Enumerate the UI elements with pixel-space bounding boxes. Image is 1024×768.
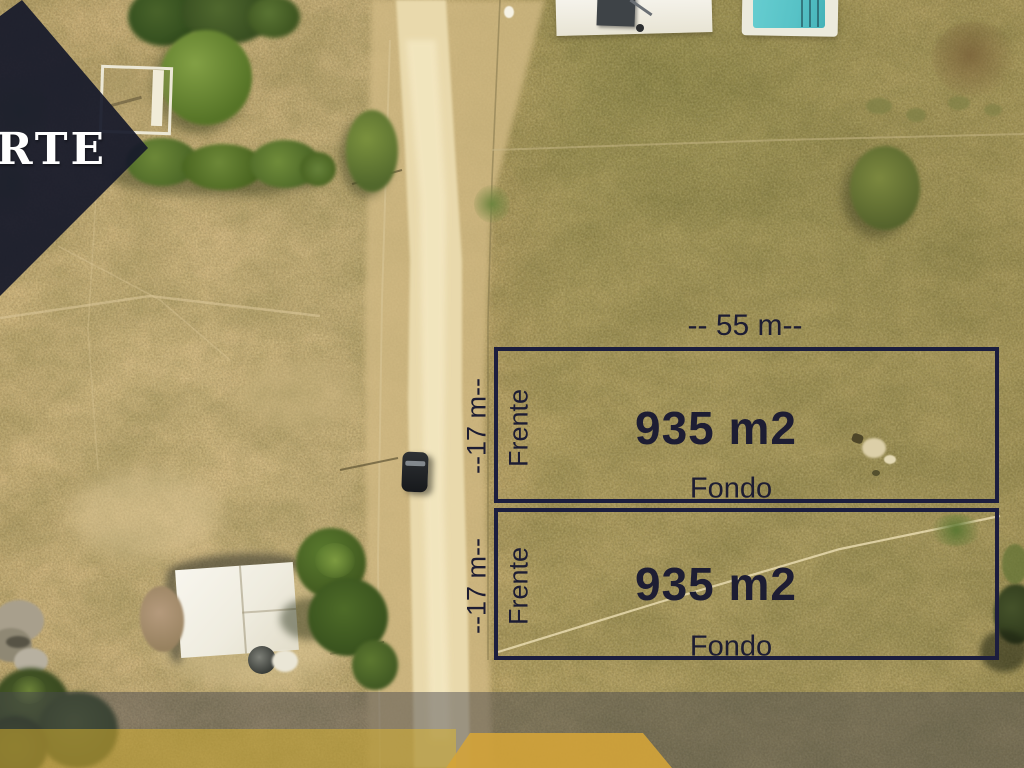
lot-1-depth-label: --17 m--: [462, 378, 493, 474]
grass-tuft: [1002, 544, 1024, 584]
lot-1-area-label: 935 m2: [635, 401, 797, 455]
lot-1-front-label: Frente: [504, 389, 535, 467]
banner-gold-chevron: [440, 731, 680, 768]
banner-yellow-band: [0, 729, 456, 768]
roof-panel: [596, 0, 635, 27]
roof-vent: [636, 24, 644, 32]
lot-2-area-label: 935 m2: [635, 557, 797, 611]
worn-patch: [240, 360, 360, 430]
tree: [850, 146, 920, 230]
shrub: [948, 96, 970, 110]
lot-1-back-label: Fondo: [690, 473, 772, 506]
shrub: [906, 108, 926, 122]
bush: [474, 185, 510, 223]
lot-2-back-label: Fondo: [690, 631, 772, 664]
twig-bush: [932, 22, 1016, 96]
field-trail: [492, 134, 1024, 150]
shrub: [984, 104, 1002, 116]
debris-shadow: [6, 636, 30, 648]
worn-patch: [70, 470, 220, 560]
white-mark: [504, 6, 514, 18]
tree-highlight: [315, 543, 355, 578]
vehicle-windshield: [405, 461, 425, 467]
watermark-text: RTE: [0, 124, 126, 175]
bush: [346, 110, 398, 192]
aerial-lot-photo: RTE -- 55 m-- --17 m-- Frente 935 m2 Fon…: [0, 0, 1024, 768]
roof-seam: [239, 566, 247, 654]
shed-roof: [175, 562, 299, 658]
hedge: [300, 152, 336, 186]
white-sack: [272, 650, 298, 672]
lot-1-width-label: -- 55 m--: [688, 309, 803, 343]
tree: [352, 640, 398, 690]
lot-2-front-label: Frente: [504, 547, 535, 625]
vehicle: [401, 452, 428, 493]
lot-2-depth-label: --17 m--: [462, 538, 493, 634]
shrub: [866, 98, 892, 114]
pool-steps: [795, 0, 823, 27]
